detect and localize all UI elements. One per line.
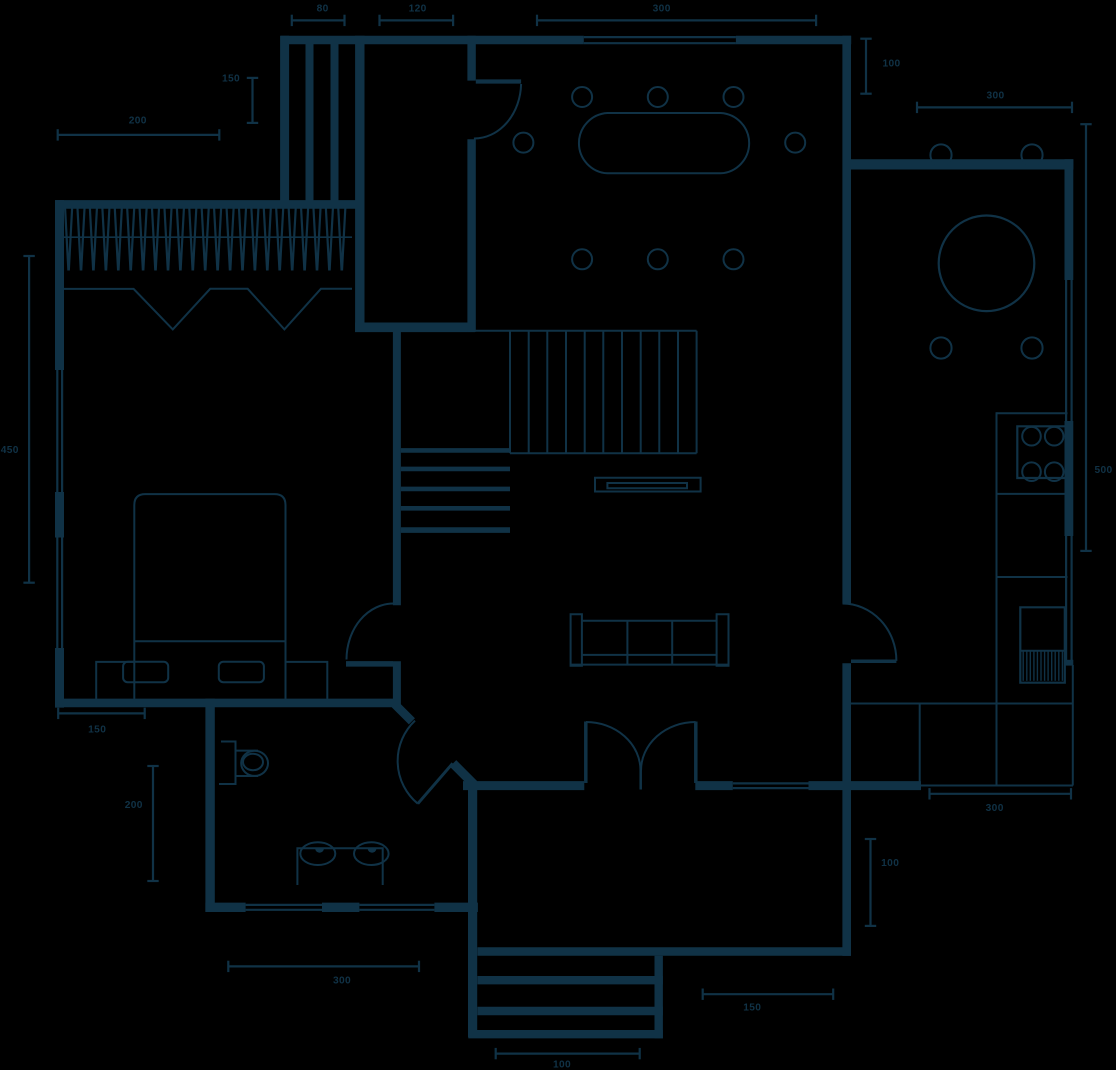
svg-text:500: 500 bbox=[1094, 465, 1112, 476]
svg-text:80: 80 bbox=[317, 3, 329, 14]
svg-text:200: 200 bbox=[125, 800, 143, 811]
svg-text:150: 150 bbox=[743, 1002, 761, 1013]
svg-text:150: 150 bbox=[222, 73, 240, 84]
svg-text:450: 450 bbox=[1, 445, 19, 456]
svg-text:300: 300 bbox=[986, 803, 1004, 814]
svg-text:100: 100 bbox=[882, 59, 900, 70]
svg-text:300: 300 bbox=[333, 976, 351, 987]
svg-text:150: 150 bbox=[88, 724, 106, 735]
svg-text:100: 100 bbox=[881, 858, 899, 869]
svg-text:120: 120 bbox=[409, 3, 427, 14]
svg-text:300: 300 bbox=[653, 3, 671, 14]
svg-text:100: 100 bbox=[553, 1059, 571, 1070]
svg-text:300: 300 bbox=[986, 90, 1004, 101]
svg-text:200: 200 bbox=[129, 115, 147, 126]
